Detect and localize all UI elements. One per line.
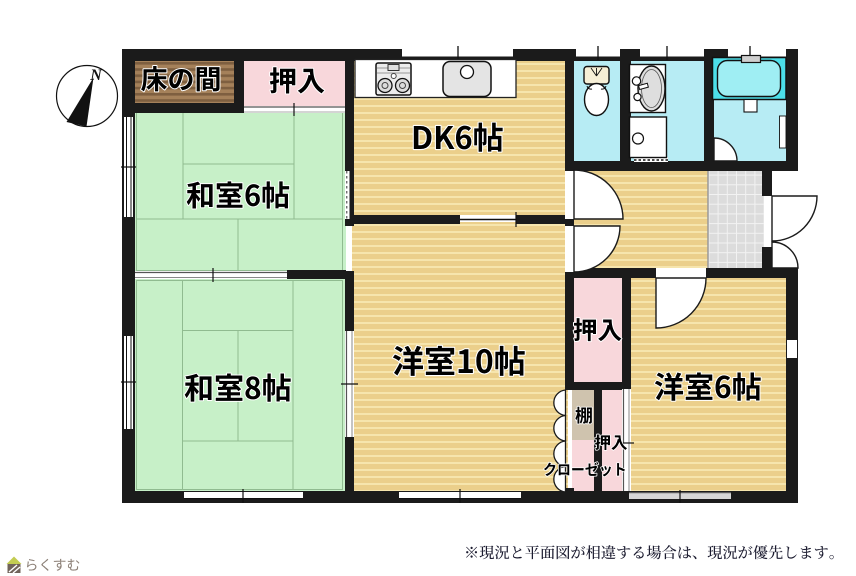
svg-text:N: N [89,67,103,84]
